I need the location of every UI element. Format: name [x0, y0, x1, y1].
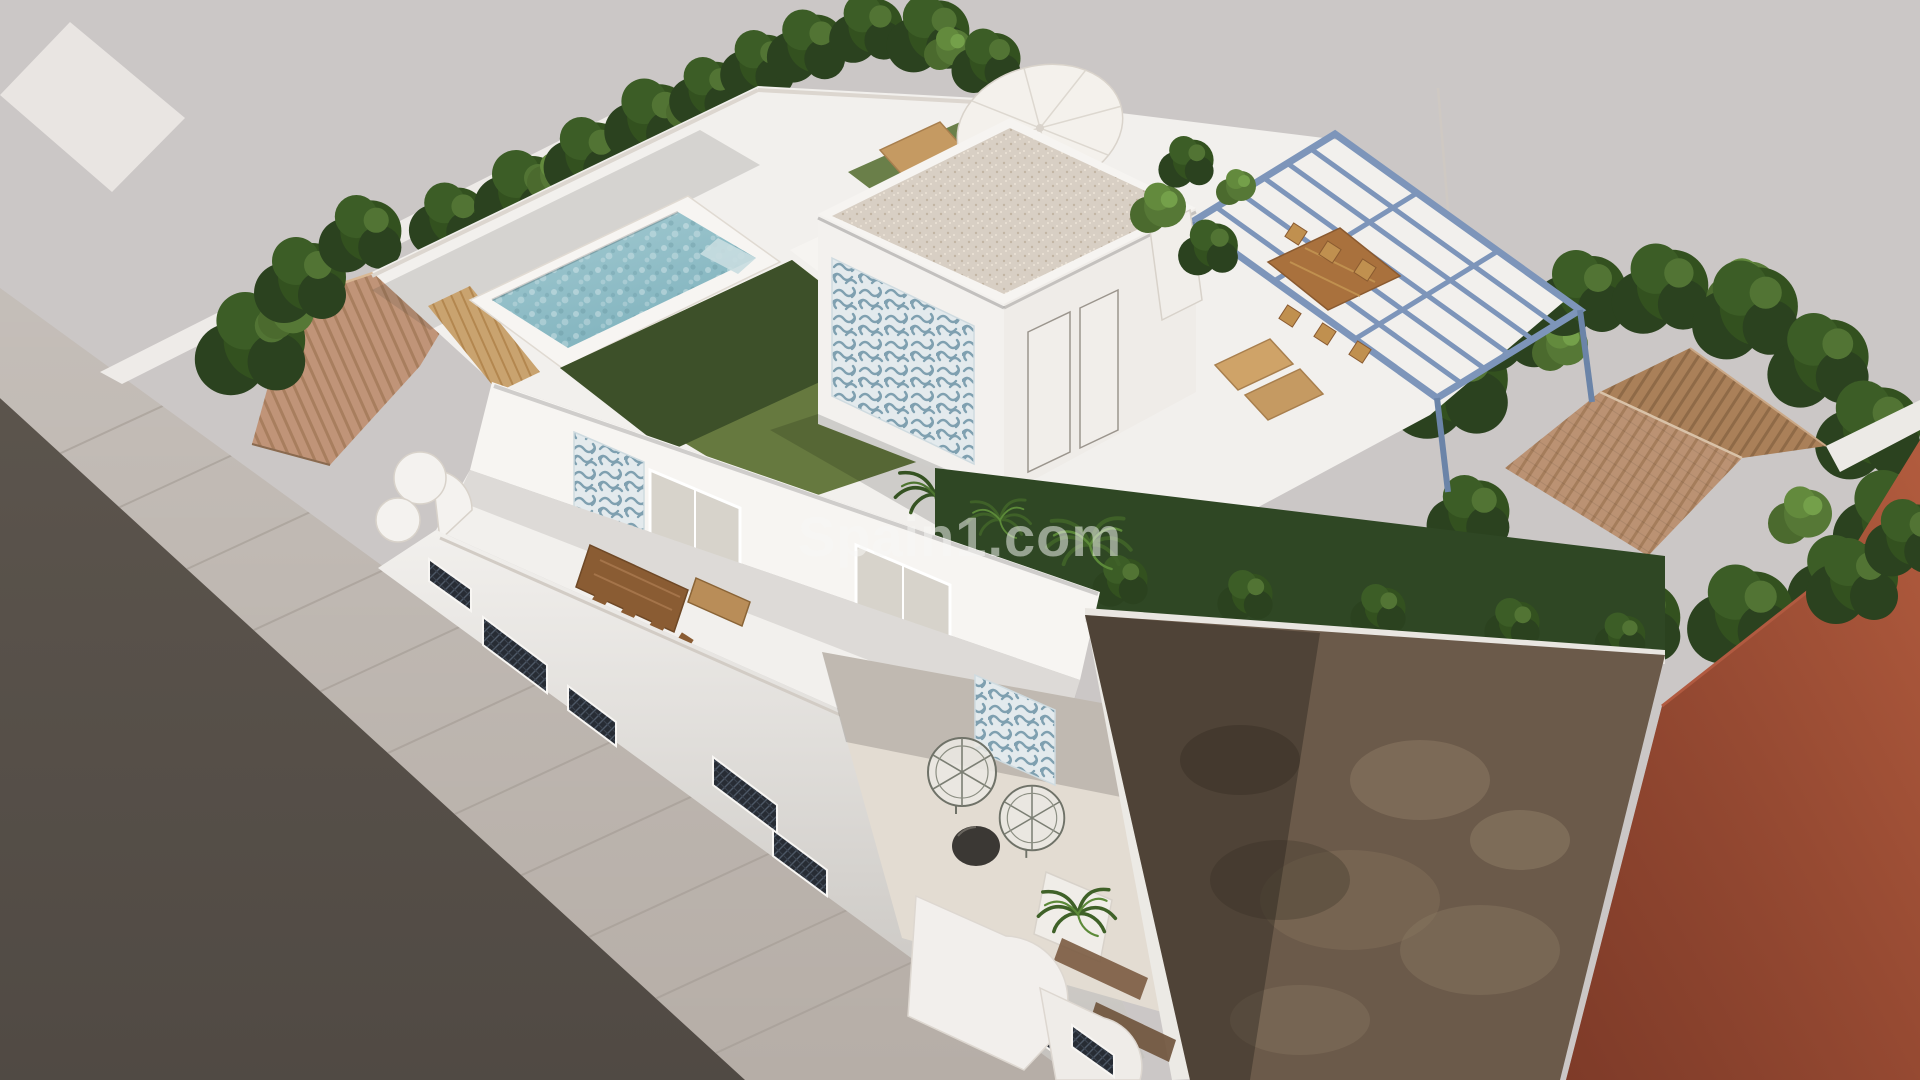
watermark: Spain1.com [798, 505, 1122, 568]
round-coffee-table [952, 826, 1000, 866]
render-viewport: Spain1.com [0, 0, 1920, 1080]
structure-door [1080, 290, 1118, 448]
structure-door [1028, 312, 1070, 472]
villa-render: Spain1.com [0, 0, 1920, 1080]
